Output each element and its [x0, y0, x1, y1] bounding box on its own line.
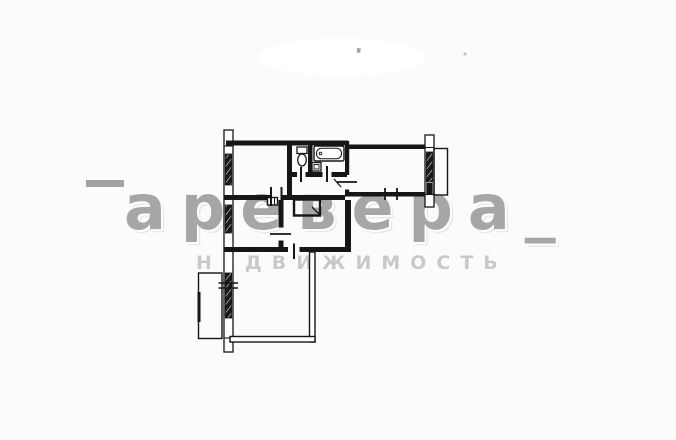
floor-plan-image: аревера_ НЕДВИЖИМОСТЬ	[0, 0, 676, 440]
wall-san-bottom-b	[306, 172, 323, 177]
window-icon	[426, 152, 432, 182]
toilet-icon	[297, 147, 307, 166]
exterior-wall-right	[425, 135, 434, 207]
wall-bottomroom-bottom	[230, 337, 315, 343]
wall-mid-bottom-b	[300, 247, 352, 252]
wall-room1-right	[287, 141, 292, 197]
wall-rightroom-left-b	[345, 190, 349, 197]
wall-rightroom-left-a	[345, 141, 349, 175]
door-leaf-icon	[312, 207, 319, 214]
wall-under-right-room	[349, 192, 425, 197]
balcony-bottom-left	[198, 273, 223, 339]
window-icon	[225, 154, 231, 185]
wall-bottomroom-right	[310, 252, 316, 342]
wall-san-bottom-c	[332, 172, 348, 177]
exterior-wall-left	[224, 130, 233, 352]
bottom-room-walls	[230, 252, 315, 342]
wall-mid-bottom-a	[224, 247, 288, 252]
wall-top-right	[345, 145, 425, 150]
window-icon	[225, 273, 231, 318]
floor-plan-drawing	[0, 0, 676, 440]
wall-main-left	[224, 195, 271, 200]
vent-box	[268, 198, 278, 206]
door-leaf-icon	[334, 179, 341, 187]
wall-san-bottom-a	[292, 172, 297, 177]
door-ticks	[219, 166, 398, 288]
sink-icon	[312, 163, 321, 172]
closet	[294, 200, 320, 216]
window-icon	[225, 205, 231, 233]
speck-marks	[357, 48, 467, 56]
wall-mid-right	[345, 200, 351, 252]
bathtub-icon	[314, 146, 344, 161]
balcony-right	[434, 149, 448, 196]
